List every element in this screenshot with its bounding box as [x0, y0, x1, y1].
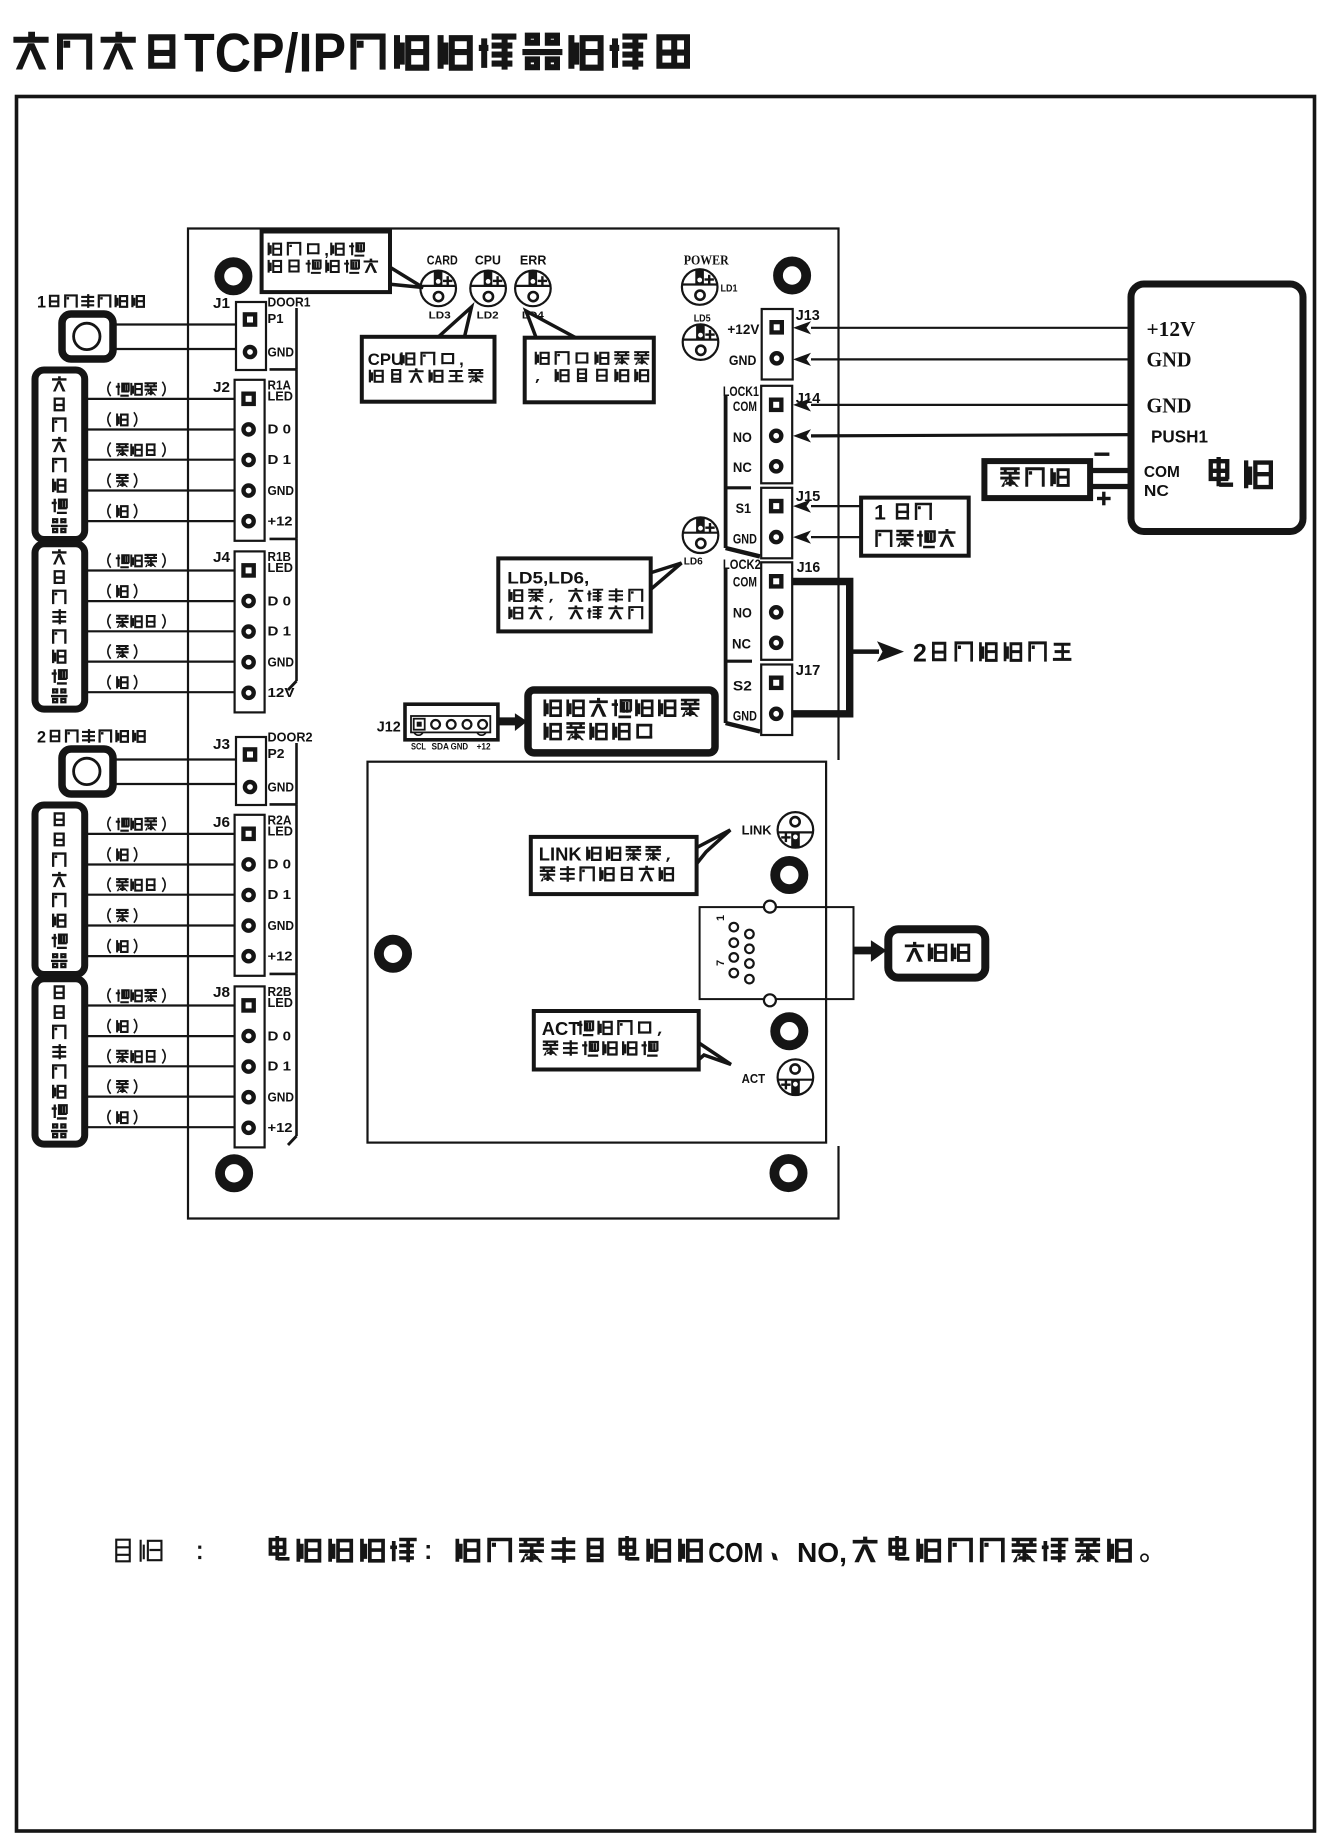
svg-text:LINK: LINK: [539, 844, 583, 865]
svg-text:ACT: ACT: [742, 1071, 766, 1086]
svg-text:SCL: SCL: [411, 742, 426, 752]
svg-text:+12: +12: [268, 1120, 293, 1135]
svg-text:2: 2: [913, 640, 927, 667]
svg-text:J17: J17: [796, 662, 821, 679]
svg-text:D 1: D 1: [268, 887, 292, 902]
svg-text:COM: COM: [733, 574, 757, 590]
svg-text:NC: NC: [733, 459, 752, 475]
svg-text:J1: J1: [213, 295, 230, 312]
svg-text:NO,: NO,: [797, 1537, 847, 1568]
svg-text:LED: LED: [268, 824, 294, 839]
svg-text:GND: GND: [268, 483, 295, 498]
svg-text:LD5: LD5: [694, 313, 711, 325]
svg-text:+12: +12: [268, 949, 293, 964]
svg-text:D 1: D 1: [268, 452, 292, 467]
svg-text:GND: GND: [1147, 394, 1192, 418]
svg-text:1: 1: [715, 915, 727, 921]
svg-text:D 0: D 0: [268, 594, 292, 609]
svg-text:S2: S2: [733, 678, 752, 694]
svg-text:S1: S1: [736, 500, 752, 516]
svg-text:GND: GND: [268, 345, 295, 360]
svg-text:J13: J13: [796, 307, 820, 324]
svg-text:GND: GND: [268, 1090, 295, 1105]
svg-text:NC: NC: [1144, 483, 1169, 500]
svg-text:GND: GND: [729, 352, 757, 368]
svg-text:LD5,LD6,: LD5,LD6,: [507, 569, 589, 587]
svg-text:+12: +12: [477, 742, 491, 752]
svg-text:D 1: D 1: [268, 1059, 292, 1074]
svg-text:7: 7: [715, 960, 727, 966]
svg-text:LED: LED: [268, 560, 294, 575]
svg-text:P1: P1: [268, 311, 284, 326]
svg-text:J8: J8: [213, 984, 230, 1001]
svg-text:DOOR1: DOOR1: [268, 295, 311, 310]
svg-text:GND: GND: [268, 918, 295, 933]
svg-text:1: 1: [874, 502, 886, 525]
svg-text:LD6: LD6: [684, 556, 703, 568]
svg-text:CARD: CARD: [427, 254, 458, 268]
svg-text:GND: GND: [451, 742, 469, 752]
svg-text:NO: NO: [733, 429, 752, 445]
svg-text:ACT: ACT: [542, 1018, 581, 1039]
svg-text:+12V: +12V: [727, 321, 760, 337]
svg-text:COM: COM: [733, 398, 757, 414]
svg-text:LED: LED: [268, 995, 294, 1010]
svg-text:GND: GND: [268, 780, 295, 795]
svg-text:D 0: D 0: [268, 857, 292, 872]
svg-text:D 1: D 1: [268, 624, 292, 639]
svg-text:GND: GND: [268, 655, 295, 670]
svg-text:P2: P2: [268, 746, 285, 761]
svg-text:1: 1: [37, 293, 46, 311]
svg-text:LOCK2: LOCK2: [723, 557, 761, 572]
svg-text:LINK: LINK: [742, 823, 773, 838]
svg-text:NO: NO: [733, 605, 752, 621]
svg-text:COM: COM: [1144, 464, 1180, 481]
svg-text:POWER: POWER: [684, 254, 730, 269]
svg-text:J4: J4: [213, 549, 231, 566]
svg-text:2: 2: [37, 729, 46, 747]
svg-text:,: ,: [459, 350, 464, 369]
svg-text:TCP/IP: TCP/IP: [184, 22, 346, 84]
svg-text:NC: NC: [732, 636, 751, 652]
svg-text:LOCK1: LOCK1: [723, 384, 759, 399]
svg-text:J3: J3: [213, 736, 230, 753]
svg-text:LED: LED: [268, 389, 294, 404]
svg-text:PUSH1: PUSH1: [1151, 427, 1208, 447]
svg-text:D 0: D 0: [268, 1029, 292, 1044]
svg-text:SDA: SDA: [432, 742, 450, 752]
svg-text:ERR: ERR: [520, 254, 547, 268]
svg-text:J2: J2: [213, 379, 230, 396]
svg-text:+12V: +12V: [1147, 317, 1196, 341]
svg-text:CPU: CPU: [368, 350, 403, 369]
svg-text:LD3: LD3: [429, 310, 451, 322]
svg-text:J6: J6: [213, 814, 230, 831]
svg-text:J12: J12: [377, 719, 401, 736]
svg-text:CPU: CPU: [475, 254, 501, 268]
svg-text:+12: +12: [268, 514, 293, 529]
svg-text:GND: GND: [1147, 348, 1192, 372]
svg-text:,: ,: [324, 240, 329, 259]
svg-text:COM: COM: [708, 1537, 763, 1568]
svg-text:LD1: LD1: [721, 283, 738, 295]
svg-text:J16: J16: [797, 559, 821, 576]
svg-text:GND: GND: [733, 708, 757, 724]
svg-text:LD2: LD2: [477, 310, 499, 322]
svg-text:D 0: D 0: [268, 422, 292, 437]
svg-text:DOOR2: DOOR2: [268, 730, 313, 745]
svg-text:GND: GND: [733, 531, 757, 547]
